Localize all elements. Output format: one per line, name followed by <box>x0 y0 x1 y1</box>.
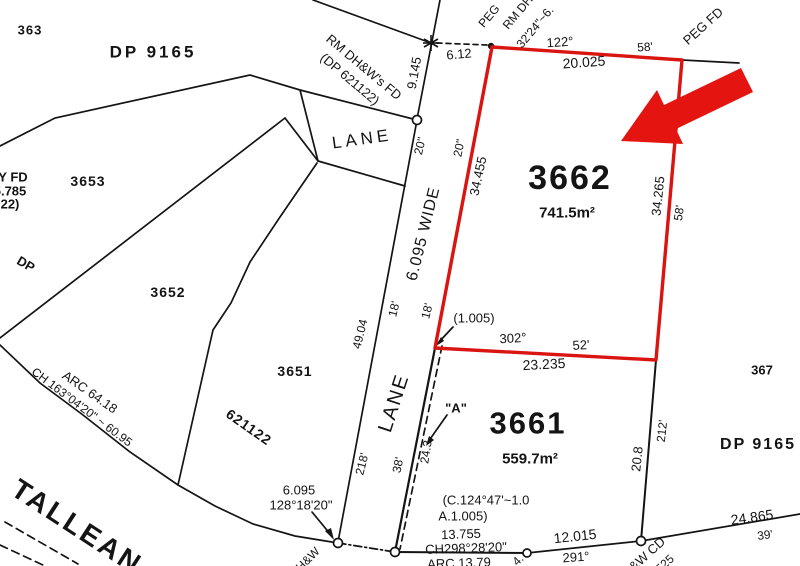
lot-363-label: 363 <box>18 24 43 37</box>
chord-298-label: CH298°28'20" <box>425 540 507 556</box>
street-edge-dash-2 <box>0 545 45 566</box>
lot-3652-label: 3652 <box>150 285 185 299</box>
dim-52ft: 52' <box>572 338 590 352</box>
dim-34-265: 34.265 <box>649 176 666 217</box>
dim-20in-right: 20" <box>451 138 466 158</box>
dim-38ft: 38' <box>391 456 406 474</box>
lot-3653-label: 3653 <box>70 174 105 188</box>
occupation-c124-label: (C.124°47'~1.0 <box>443 494 530 507</box>
lane-sw-edge <box>318 161 405 186</box>
lot-3653-3652-boundary <box>0 118 285 338</box>
survey-plan: 363DP 91653653Y FD5.78522)DP365236516211… <box>0 0 800 566</box>
north-east-extension <box>682 60 739 63</box>
dim-13-755: 13.755 <box>441 527 481 541</box>
ref-mark-yfd-frag: Y FD <box>0 171 28 184</box>
lane-west-line <box>338 120 417 542</box>
dim-20-8: 20.8 <box>629 446 645 473</box>
leader-arrowheads <box>325 337 444 540</box>
lot-3661-label: 3661 <box>490 408 567 439</box>
dp-9165-right-label: DP 9165 <box>720 437 796 453</box>
survey-mark-circle <box>523 549 531 557</box>
red-arrow-annotation <box>621 68 753 144</box>
occupation-a1005-label: A.1.005) <box>438 510 487 523</box>
survey-mark-circle <box>391 548 400 557</box>
dim-6-12: 6.12 <box>446 46 472 61</box>
lot-3662-area: 741.5m² <box>539 206 595 221</box>
dim-58ft-east: 58' <box>672 204 686 221</box>
dim-291deg: 291° <box>562 550 590 565</box>
dim-1-005-paren: (1.005) <box>453 312 494 325</box>
lot-3651-label: 3651 <box>277 364 312 378</box>
lot-367-label: 367 <box>751 364 773 377</box>
ref-mark-22-frag: 22) <box>1 198 20 211</box>
dim-58ft-top: 58' <box>637 40 653 53</box>
survey-plan-linework <box>0 0 800 566</box>
lot-3662-label: 3662 <box>528 161 612 195</box>
dim-23-235: 23.235 <box>522 356 566 372</box>
survey-mark-circle <box>334 539 343 548</box>
survey-mark-star <box>423 35 439 51</box>
arc-13-79-label: ARC 13.79 <box>427 555 491 566</box>
dim-20-025: 20.025 <box>562 54 606 71</box>
bearing-128-label: 128°18'20" <box>270 499 333 512</box>
dim-212ft: 212' <box>655 419 669 442</box>
dim-18ft-right: 18' <box>419 302 434 320</box>
dim-6-095-bottom: 6.095 <box>283 484 316 497</box>
dim-39ft: 39' <box>756 528 773 542</box>
lot-3661-area: 559.7m² <box>502 452 558 467</box>
peg-tie-dashed <box>437 43 487 45</box>
dim-302deg: 302° <box>499 331 527 345</box>
survey-mark-circle <box>413 116 422 125</box>
point-a-label: "A" <box>445 402 467 415</box>
dp-9165-top-label: DP 9165 <box>110 44 197 61</box>
lane-crossing-dashdot <box>338 543 395 552</box>
survey-mark-circle <box>637 537 646 546</box>
dim-122deg: 122° <box>546 35 574 50</box>
dim-24-3: 24.3 <box>418 440 434 465</box>
south-boundary-right <box>641 514 800 541</box>
dim-18ft-left: 18' <box>386 300 401 318</box>
lot-3652-3651-boundary <box>178 163 317 485</box>
survey-marks <box>334 35 646 557</box>
